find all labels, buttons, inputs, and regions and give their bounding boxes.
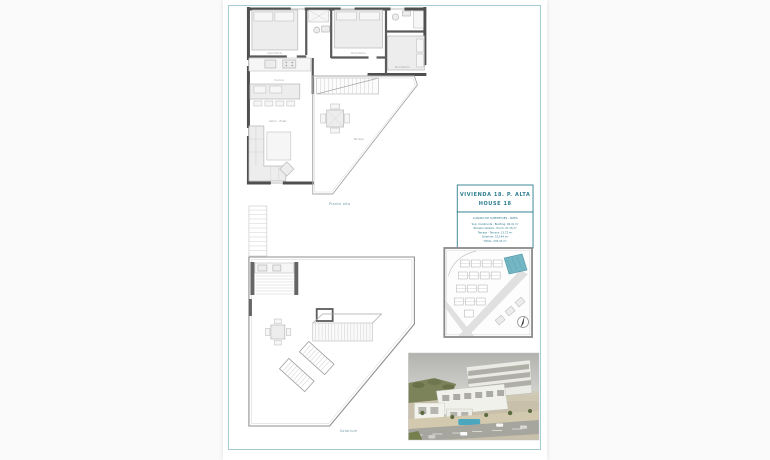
room-label-living: Salón - Estar	[269, 119, 287, 123]
title-line-1: VIVIENDA 18. P. ALTA	[460, 192, 531, 198]
document-page: Dormitorio Dormitorio Dormitorio Cocina …	[223, 0, 547, 460]
render-pool	[458, 419, 480, 425]
room-label-bedroom1: Dormitorio	[267, 51, 282, 55]
bathroom-2-fixtures	[392, 11, 423, 28]
bed-1	[252, 10, 298, 50]
upper-floor-plan: Dormitorio Dormitorio Dormitorio Cocina …	[247, 7, 426, 206]
dining-table	[321, 104, 350, 133]
kitchen-counter	[249, 58, 311, 71]
title-block: VIVIENDA 18. P. ALTA HOUSE 18 CUADRO DE …	[457, 185, 533, 248]
areas-table-header: CUADRO DE SUPERFICIES - SIZES	[473, 216, 518, 220]
staircase-upper	[317, 78, 379, 94]
pergola	[313, 309, 382, 341]
sofa	[249, 126, 294, 181]
room-label-bedroom3: Dormitorio	[395, 65, 410, 69]
solarium-label: Solarium	[340, 429, 357, 433]
kitchen-island	[250, 84, 300, 106]
site-plan	[444, 248, 532, 337]
bathroom-1-fixtures	[309, 10, 330, 33]
areas-row-covered-terrace: Terraza cubierta - Porch: 21,76 m²	[473, 226, 517, 230]
solarium-plan: Solarium	[249, 257, 414, 433]
areas-row-terrace: Terraza - Terrace: 13,72 m²	[478, 230, 513, 234]
title-line-2: HOUSE 18	[479, 201, 512, 207]
areas-row-built: Sup. Construida - Building: 94,41 m²	[472, 222, 519, 226]
areas-row-total: TOTAL: 233,33 m²	[484, 239, 507, 243]
canvas-background: Dormitorio Dormitorio Dormitorio Cocina …	[0, 0, 770, 460]
drawing-svg: Dormitorio Dormitorio Dormitorio Cocina …	[229, 6, 540, 449]
room-label-bedroom2: Dormitorio	[351, 51, 366, 55]
areas-row-solarium: Solarium: 103,44 m²	[482, 235, 508, 239]
bed-2	[335, 10, 383, 48]
room-label-kitchen: Cocina	[274, 78, 284, 82]
room-label-terrace: Terraza	[353, 137, 364, 141]
upper-floor-label: Planta alta	[329, 202, 350, 206]
render-3d	[408, 353, 539, 442]
page-border: Dormitorio Dormitorio Dormitorio Cocina …	[228, 5, 541, 450]
